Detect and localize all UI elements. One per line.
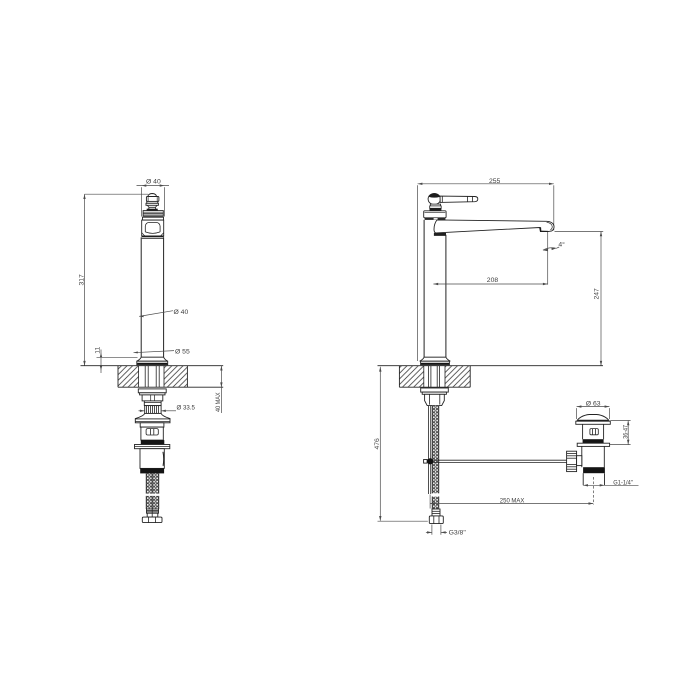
svg-text:247: 247 bbox=[594, 288, 601, 300]
svg-text:Ø 40: Ø 40 bbox=[146, 179, 161, 186]
svg-text:Ø 55: Ø 55 bbox=[175, 348, 190, 355]
svg-text:11: 11 bbox=[95, 347, 102, 354]
svg-text:208: 208 bbox=[487, 277, 499, 284]
svg-text:Ø 33.5: Ø 33.5 bbox=[177, 405, 196, 412]
svg-text:Ø 40: Ø 40 bbox=[174, 309, 189, 316]
svg-text:G3/8": G3/8" bbox=[449, 530, 467, 537]
svg-text:4°: 4° bbox=[558, 241, 565, 249]
svg-text:40 MAX: 40 MAX bbox=[215, 392, 222, 412]
